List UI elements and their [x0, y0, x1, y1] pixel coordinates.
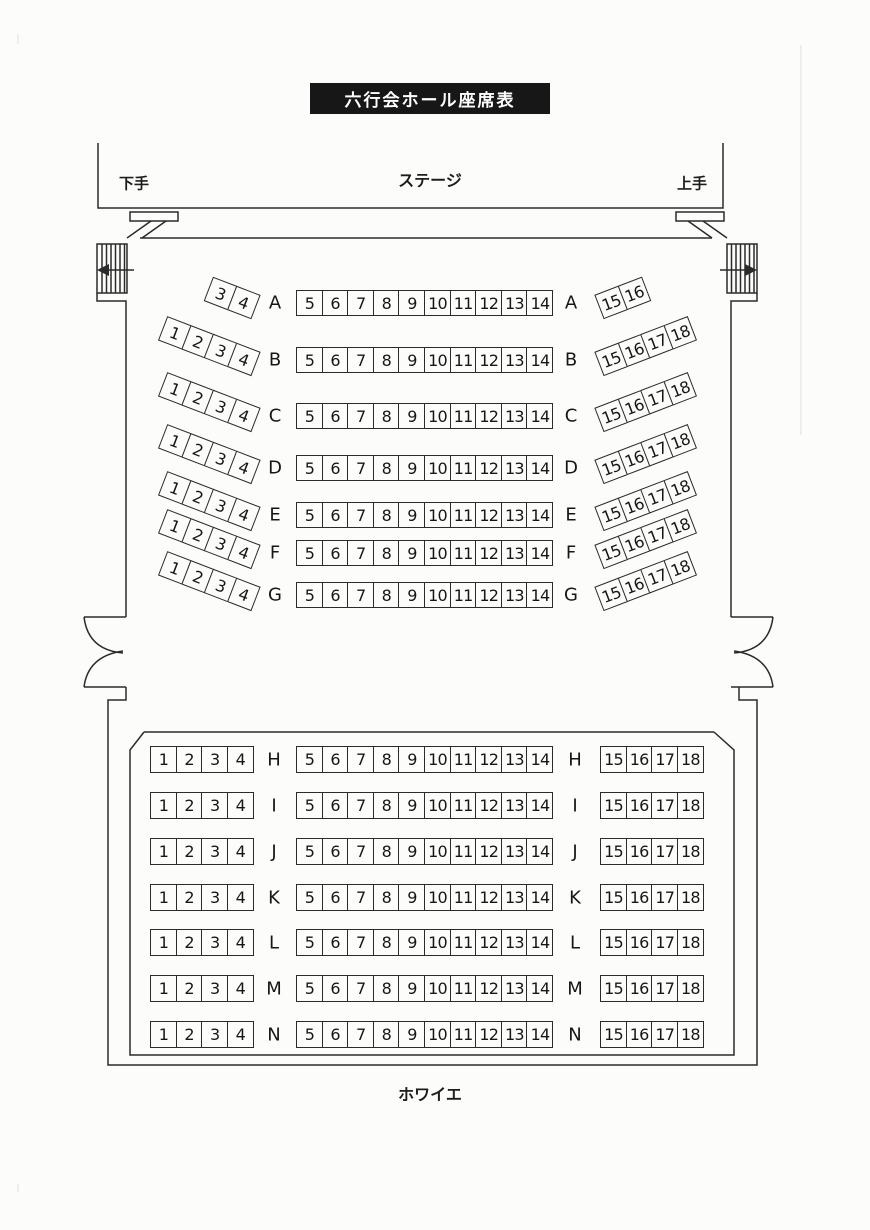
- seat-I13: 13: [501, 792, 528, 819]
- seat-J8: 8: [373, 838, 400, 865]
- seat-H14: 14: [526, 746, 553, 773]
- seat-L10: 10: [424, 929, 451, 956]
- stage-left-wing-label: 下手: [119, 173, 149, 194]
- row-M-center-block: 567891011121314: [296, 975, 553, 1002]
- row-B-center-block: 567891011121314: [296, 347, 553, 373]
- seat-L11: 11: [450, 929, 477, 956]
- row-label-E-left: E: [269, 505, 280, 526]
- seat-C7: 7: [347, 403, 374, 429]
- seat-K13: 13: [501, 884, 528, 911]
- seat-F5: 5: [296, 540, 323, 566]
- seat-N10: 10: [424, 1021, 451, 1048]
- seat-H7: 7: [347, 746, 374, 773]
- seat-D12: 12: [475, 455, 502, 481]
- seat-L5: 5: [296, 929, 323, 956]
- seat-A13: 13: [501, 290, 528, 316]
- seat-N15: 15: [600, 1021, 627, 1048]
- seat-E13: 13: [501, 502, 528, 528]
- row-D-center-block: 567891011121314: [296, 455, 553, 481]
- seat-N13: 13: [501, 1021, 528, 1048]
- seat-J10: 10: [424, 838, 451, 865]
- seat-J14: 14: [526, 838, 553, 865]
- row-K-left-block: 1234: [150, 884, 254, 911]
- seat-I15: 15: [600, 792, 627, 819]
- row-H-left-block: 1234: [150, 746, 254, 773]
- seat-J2: 2: [176, 838, 203, 865]
- seat-L13: 13: [501, 929, 528, 956]
- seat-H2: 2: [176, 746, 203, 773]
- seat-H17: 17: [651, 746, 678, 773]
- seat-K12: 12: [475, 884, 502, 911]
- seat-J15: 15: [600, 838, 627, 865]
- seat-G13: 13: [501, 582, 528, 608]
- seat-F8: 8: [373, 540, 400, 566]
- seat-G11: 11: [450, 582, 477, 608]
- seat-E7: 7: [347, 502, 374, 528]
- seat-I4: 4: [227, 792, 254, 819]
- seat-I5: 5: [296, 792, 323, 819]
- stage-ramp-left: [127, 221, 166, 238]
- seat-M5: 5: [296, 975, 323, 1002]
- seat-M16: 16: [626, 975, 653, 1002]
- seat-A6: 6: [322, 290, 349, 316]
- seat-L16: 16: [626, 929, 653, 956]
- seat-M18: 18: [677, 975, 704, 1002]
- seat-H18: 18: [677, 746, 704, 773]
- stairs-left-icon: [97, 244, 134, 293]
- seat-H12: 12: [475, 746, 502, 773]
- seat-I16: 16: [626, 792, 653, 819]
- seat-A5: 5: [296, 290, 323, 316]
- seat-I18: 18: [677, 792, 704, 819]
- seat-N1: 1: [150, 1021, 177, 1048]
- row-label-H-left: H: [267, 750, 281, 771]
- seat-G6: 6: [322, 582, 349, 608]
- seat-J3: 3: [201, 838, 228, 865]
- seat-A12: 12: [475, 290, 502, 316]
- seat-B10: 10: [424, 347, 451, 373]
- seat-H6: 6: [322, 746, 349, 773]
- seat-I6: 6: [322, 792, 349, 819]
- seat-J4: 4: [227, 838, 254, 865]
- title-banner: 六行会ホール座席表: [310, 83, 550, 114]
- seat-L1: 1: [150, 929, 177, 956]
- seat-B14: 14: [526, 347, 553, 373]
- seat-L8: 8: [373, 929, 400, 956]
- seat-N12: 12: [475, 1021, 502, 1048]
- seat-C6: 6: [322, 403, 349, 429]
- seat-K15: 15: [600, 884, 627, 911]
- seat-K18: 18: [677, 884, 704, 911]
- row-M-left-block: 1234: [150, 975, 254, 1002]
- seat-H13: 13: [501, 746, 528, 773]
- seat-A7: 7: [347, 290, 374, 316]
- seat-K7: 7: [347, 884, 374, 911]
- seat-J13: 13: [501, 838, 528, 865]
- seat-K6: 6: [322, 884, 349, 911]
- row-F-center-block: 567891011121314: [296, 540, 553, 566]
- seat-E10: 10: [424, 502, 451, 528]
- row-K-center-block: 567891011121314: [296, 884, 553, 911]
- seat-M3: 3: [201, 975, 228, 1002]
- seat-I11: 11: [450, 792, 477, 819]
- row-N-center-block: 567891011121314: [296, 1021, 553, 1048]
- seat-K4: 4: [227, 884, 254, 911]
- seat-M17: 17: [651, 975, 678, 1002]
- seat-M9: 9: [398, 975, 425, 1002]
- seat-L17: 17: [651, 929, 678, 956]
- seat-F12: 12: [475, 540, 502, 566]
- seat-E12: 12: [475, 502, 502, 528]
- seat-I10: 10: [424, 792, 451, 819]
- seat-J9: 9: [398, 838, 425, 865]
- seat-M15: 15: [600, 975, 627, 1002]
- seat-A11: 11: [450, 290, 477, 316]
- row-label-L-right: L: [570, 933, 580, 954]
- seat-J5: 5: [296, 838, 323, 865]
- seat-M8: 8: [373, 975, 400, 1002]
- seat-D8: 8: [373, 455, 400, 481]
- row-label-E-right: E: [565, 505, 576, 526]
- seat-K8: 8: [373, 884, 400, 911]
- seat-F13: 13: [501, 540, 528, 566]
- seat-F9: 9: [398, 540, 425, 566]
- row-I-center-block: 567891011121314: [296, 792, 553, 819]
- seat-M13: 13: [501, 975, 528, 1002]
- seat-I14: 14: [526, 792, 553, 819]
- row-G-center-block: 567891011121314: [296, 582, 553, 608]
- row-label-A-left: A: [269, 293, 281, 314]
- seat-D7: 7: [347, 455, 374, 481]
- seat-H15: 15: [600, 746, 627, 773]
- row-H-right-block: 15161718: [600, 746, 704, 773]
- seat-L4: 4: [227, 929, 254, 956]
- seat-G14: 14: [526, 582, 553, 608]
- seat-M4: 4: [227, 975, 254, 1002]
- seat-K1: 1: [150, 884, 177, 911]
- row-label-D-left: D: [268, 458, 282, 479]
- seat-K11: 11: [450, 884, 477, 911]
- row-C-center-block: 567891011121314: [296, 403, 553, 429]
- seat-G8: 8: [373, 582, 400, 608]
- door-right-icon: [731, 617, 773, 687]
- seat-L18: 18: [677, 929, 704, 956]
- seat-C13: 13: [501, 403, 528, 429]
- seat-J6: 6: [322, 838, 349, 865]
- row-N-right-block: 15161718: [600, 1021, 704, 1048]
- seat-N16: 16: [626, 1021, 653, 1048]
- seat-K10: 10: [424, 884, 451, 911]
- seat-M1: 1: [150, 975, 177, 1002]
- row-label-I-left: I: [271, 796, 276, 817]
- seat-N7: 7: [347, 1021, 374, 1048]
- seat-F10: 10: [424, 540, 451, 566]
- seat-N4: 4: [227, 1021, 254, 1048]
- seat-L9: 9: [398, 929, 425, 956]
- row-N-left-block: 1234: [150, 1021, 254, 1048]
- seat-E11: 11: [450, 502, 477, 528]
- seat-A10: 10: [424, 290, 451, 316]
- row-label-K-right: K: [569, 888, 581, 909]
- row-I-right-block: 15161718: [600, 792, 704, 819]
- stage-step-left: [130, 212, 178, 221]
- seat-K14: 14: [526, 884, 553, 911]
- seat-D5: 5: [296, 455, 323, 481]
- seat-D6: 6: [322, 455, 349, 481]
- row-label-N-left: N: [267, 1025, 280, 1046]
- row-label-M-left: M: [266, 979, 282, 1000]
- row-label-D-right: D: [564, 458, 578, 479]
- seat-I8: 8: [373, 792, 400, 819]
- row-label-K-left: K: [268, 888, 280, 909]
- seat-K17: 17: [651, 884, 678, 911]
- seat-I7: 7: [347, 792, 374, 819]
- row-A-center-block: 567891011121314: [296, 290, 553, 316]
- seat-I3: 3: [201, 792, 228, 819]
- row-label-L-left: L: [269, 933, 279, 954]
- seat-N6: 6: [322, 1021, 349, 1048]
- row-K-right-block: 15161718: [600, 884, 704, 911]
- seat-A8: 8: [373, 290, 400, 316]
- seat-B9: 9: [398, 347, 425, 373]
- seat-N5: 5: [296, 1021, 323, 1048]
- seat-M7: 7: [347, 975, 374, 1002]
- row-label-B-right: B: [565, 350, 577, 371]
- seat-J17: 17: [651, 838, 678, 865]
- seat-N11: 11: [450, 1021, 477, 1048]
- row-label-C-right: C: [565, 406, 578, 427]
- row-label-C-left: C: [269, 406, 282, 427]
- row-label-N-right: N: [568, 1025, 581, 1046]
- seat-B11: 11: [450, 347, 477, 373]
- seat-I17: 17: [651, 792, 678, 819]
- seat-G9: 9: [398, 582, 425, 608]
- row-label-B-left: B: [269, 350, 281, 371]
- seat-D10: 10: [424, 455, 451, 481]
- seat-H4: 4: [227, 746, 254, 773]
- seat-N9: 9: [398, 1021, 425, 1048]
- seat-K16: 16: [626, 884, 653, 911]
- seat-H5: 5: [296, 746, 323, 773]
- seat-D14: 14: [526, 455, 553, 481]
- row-I-left-block: 1234: [150, 792, 254, 819]
- seat-M2: 2: [176, 975, 203, 1002]
- row-L-center-block: 567891011121314: [296, 929, 553, 956]
- seat-A14: 14: [526, 290, 553, 316]
- seat-B7: 7: [347, 347, 374, 373]
- seat-C9: 9: [398, 403, 425, 429]
- seat-J16: 16: [626, 838, 653, 865]
- seat-L2: 2: [176, 929, 203, 956]
- seat-L7: 7: [347, 929, 374, 956]
- page-title: 六行会ホール座席表: [345, 86, 516, 111]
- seat-E8: 8: [373, 502, 400, 528]
- row-E-center-block: 567891011121314: [296, 502, 553, 528]
- seat-C8: 8: [373, 403, 400, 429]
- seat-C5: 5: [296, 403, 323, 429]
- row-label-G-right: G: [564, 585, 578, 606]
- row-L-left-block: 1234: [150, 929, 254, 956]
- row-label-F-left: F: [270, 543, 280, 564]
- row-J-center-block: 567891011121314: [296, 838, 553, 865]
- seat-J1: 1: [150, 838, 177, 865]
- seat-A9: 9: [398, 290, 425, 316]
- seat-L15: 15: [600, 929, 627, 956]
- arrow-right-icon: [720, 264, 757, 276]
- seat-M10: 10: [424, 975, 451, 1002]
- seat-G10: 10: [424, 582, 451, 608]
- seat-I2: 2: [176, 792, 203, 819]
- seat-D9: 9: [398, 455, 425, 481]
- seat-F6: 6: [322, 540, 349, 566]
- row-H-center-block: 567891011121314: [296, 746, 553, 773]
- seat-D13: 13: [501, 455, 528, 481]
- seat-B8: 8: [373, 347, 400, 373]
- seat-L3: 3: [201, 929, 228, 956]
- row-J-left-block: 1234: [150, 838, 254, 865]
- seat-E5: 5: [296, 502, 323, 528]
- seating-chart-page: 六行会ホール座席表 ステージ 下手 上手 ホワイエ 34567891011121…: [0, 0, 870, 1230]
- seat-C10: 10: [424, 403, 451, 429]
- seat-N17: 17: [651, 1021, 678, 1048]
- seat-H10: 10: [424, 746, 451, 773]
- seat-G5: 5: [296, 582, 323, 608]
- seat-J18: 18: [677, 838, 704, 865]
- seat-B12: 12: [475, 347, 502, 373]
- seat-I12: 12: [475, 792, 502, 819]
- stairs-right-icon: [720, 244, 757, 293]
- seat-K9: 9: [398, 884, 425, 911]
- foyer-label: ホワイエ: [398, 1081, 462, 1105]
- row-L-right-block: 15161718: [600, 929, 704, 956]
- seat-J7: 7: [347, 838, 374, 865]
- seat-G12: 12: [475, 582, 502, 608]
- row-label-J-left: J: [271, 842, 276, 863]
- row-label-F-right: F: [566, 543, 576, 564]
- hall-lower-walls: [108, 687, 757, 1065]
- seat-J11: 11: [450, 838, 477, 865]
- seat-M6: 6: [322, 975, 349, 1002]
- seat-M14: 14: [526, 975, 553, 1002]
- row-label-G-left: G: [268, 585, 282, 606]
- seat-M11: 11: [450, 975, 477, 1002]
- row-M-right-block: 15161718: [600, 975, 704, 1002]
- seat-I9: 9: [398, 792, 425, 819]
- seat-J12: 12: [475, 838, 502, 865]
- seat-L14: 14: [526, 929, 553, 956]
- door-left-icon: [84, 617, 126, 687]
- seat-H8: 8: [373, 746, 400, 773]
- seat-E9: 9: [398, 502, 425, 528]
- seat-K3: 3: [201, 884, 228, 911]
- seat-F7: 7: [347, 540, 374, 566]
- seat-N2: 2: [176, 1021, 203, 1048]
- seat-C14: 14: [526, 403, 553, 429]
- row-label-A-right: A: [565, 293, 577, 314]
- seat-H9: 9: [398, 746, 425, 773]
- seat-H11: 11: [450, 746, 477, 773]
- seat-H16: 16: [626, 746, 653, 773]
- seat-L6: 6: [322, 929, 349, 956]
- seat-H3: 3: [201, 746, 228, 773]
- seat-N18: 18: [677, 1021, 704, 1048]
- seat-M12: 12: [475, 975, 502, 1002]
- seat-B6: 6: [322, 347, 349, 373]
- seat-H1: 1: [150, 746, 177, 773]
- seat-B5: 5: [296, 347, 323, 373]
- seat-E6: 6: [322, 502, 349, 528]
- seat-F11: 11: [450, 540, 477, 566]
- stage-step-right: [676, 212, 724, 221]
- seat-E14: 14: [526, 502, 553, 528]
- row-label-M-right: M: [567, 979, 583, 1000]
- stage-label: ステージ: [398, 167, 462, 191]
- seat-F14: 14: [526, 540, 553, 566]
- seat-N14: 14: [526, 1021, 553, 1048]
- seat-L12: 12: [475, 929, 502, 956]
- row-label-J-right: J: [572, 842, 577, 863]
- seat-D11: 11: [450, 455, 477, 481]
- seat-B13: 13: [501, 347, 528, 373]
- seat-G7: 7: [347, 582, 374, 608]
- stage-right-wing-label: 上手: [677, 173, 707, 194]
- seat-I1: 1: [150, 792, 177, 819]
- row-label-I-right: I: [572, 796, 577, 817]
- seat-K5: 5: [296, 884, 323, 911]
- seat-N8: 8: [373, 1021, 400, 1048]
- row-J-right-block: 15161718: [600, 838, 704, 865]
- stage-ramp-right: [688, 221, 727, 238]
- seat-C11: 11: [450, 403, 477, 429]
- seat-K2: 2: [176, 884, 203, 911]
- seat-N3: 3: [201, 1021, 228, 1048]
- row-label-H-right: H: [568, 750, 582, 771]
- seat-C12: 12: [475, 403, 502, 429]
